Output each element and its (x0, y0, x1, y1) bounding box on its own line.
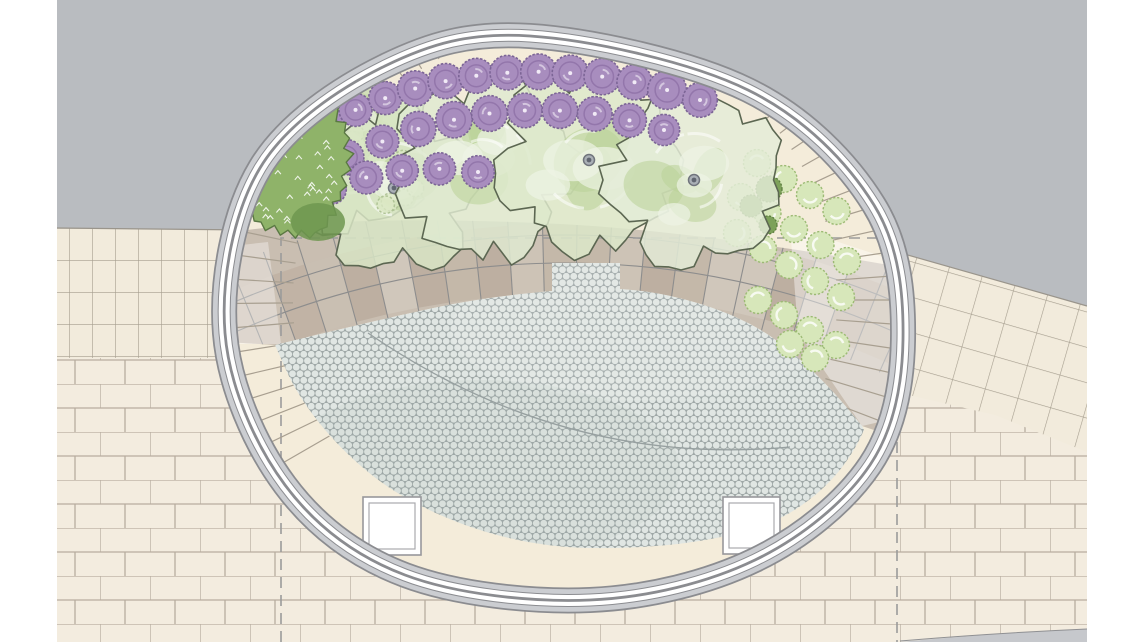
purple-shrub (423, 153, 455, 185)
hedge-shrub-circle (823, 198, 850, 225)
hedge-shrub (776, 252, 803, 279)
hedge-shrub (797, 182, 824, 209)
hedge-shrub-circle (828, 284, 855, 311)
purple-shrub (386, 155, 418, 187)
purple-shrub-center-dot (633, 80, 637, 84)
hedge-shrub-circle (797, 182, 824, 209)
canopy-patch-pale (526, 170, 571, 201)
purple-shrub (584, 58, 620, 94)
hedge-shrub-circle (807, 232, 834, 259)
purple-shrub-center-dot (662, 128, 666, 132)
hedge-shrub (781, 216, 808, 243)
tree-trunk-core (692, 178, 697, 183)
left-shrub-dark-patch (291, 203, 345, 241)
purple-shrub-center-dot (476, 170, 480, 174)
purple-shrub-center-dot (400, 169, 404, 173)
purple-shrub-center-dot (416, 127, 420, 131)
hedge-shrub-circle (771, 302, 798, 329)
tree-trunk-core (587, 158, 592, 163)
purple-shrub-center-dot (593, 112, 597, 116)
purple-shrub-center-dot (505, 71, 509, 75)
hedge-shrub (834, 248, 861, 275)
purple-shrub-center-dot (537, 70, 541, 74)
purple-shrub-center-dot (354, 108, 358, 112)
purple-shrub (613, 104, 647, 138)
purple-shrub (366, 125, 399, 158)
purple-shrub-center-dot (568, 71, 572, 75)
purple-shrub (459, 58, 494, 93)
purple-shrub (542, 93, 578, 129)
hedge-shrub (828, 284, 855, 311)
purple-shrub (648, 114, 679, 145)
purple-shrub (508, 93, 543, 128)
tree-trunk-core (392, 186, 397, 191)
purple-shrub-center-dot (452, 118, 456, 122)
purple-shrub-center-dot (628, 118, 632, 122)
hedge-shrub-circle (776, 252, 803, 279)
left-margin (0, 0, 57, 642)
purple-shrub-center-dot (383, 96, 387, 100)
hedge-shrub (823, 198, 850, 225)
purple-shrub (350, 161, 383, 194)
purple-shrub (436, 102, 472, 138)
hedge-shrub-circle (777, 331, 804, 358)
purple-shrub (398, 71, 433, 106)
hedge-shrub-circle (834, 248, 861, 275)
purple-shrub-center-dot (600, 75, 604, 79)
purple-shrub-center-dot (474, 74, 478, 78)
purple-shrub-center-dot (665, 88, 669, 92)
purple-shrub (490, 55, 525, 90)
hedge-shrub (777, 331, 804, 358)
purple-shrub (552, 55, 588, 91)
canopy-rosette (377, 196, 394, 213)
hedge-shrub-circle (781, 216, 808, 243)
purple-shrub-center-dot (413, 87, 417, 91)
hedge-shrub (771, 302, 798, 329)
purple-shrub-center-dot (558, 109, 562, 113)
purple-shrub (521, 54, 557, 90)
purple-shrub (472, 96, 508, 132)
purple-shrub (401, 111, 436, 146)
purple-shrub-center-dot (523, 109, 527, 113)
hedge-shrub-circle (802, 345, 829, 372)
right-margin (1087, 0, 1140, 642)
purple-shrub (617, 65, 652, 100)
purple-shrub-center-dot (698, 98, 702, 102)
purple-shrub (369, 82, 402, 115)
hedge-shrub (807, 232, 834, 259)
landscape-plan-drawing (0, 0, 1140, 642)
canopy-patch-pale (658, 203, 690, 226)
purple-shrub-center-dot (380, 140, 384, 144)
planter-square-inner (369, 503, 415, 549)
purple-shrub-center-dot (437, 167, 441, 171)
purple-shrub-center-dot (444, 79, 448, 83)
purple-shrub-center-dot (364, 176, 368, 180)
hedge-shrub (802, 345, 829, 372)
hedge-shrub (745, 287, 772, 314)
purple-shrub (462, 156, 495, 189)
hedge-shrub (802, 268, 829, 295)
hedge-shrub-circle (745, 287, 772, 314)
hedge-shrub-circle (802, 268, 829, 295)
purple-shrub-center-dot (488, 112, 492, 116)
purple-shrub (428, 64, 463, 99)
landscape-plan-canvas (0, 0, 1140, 642)
purple-shrub (578, 97, 613, 132)
